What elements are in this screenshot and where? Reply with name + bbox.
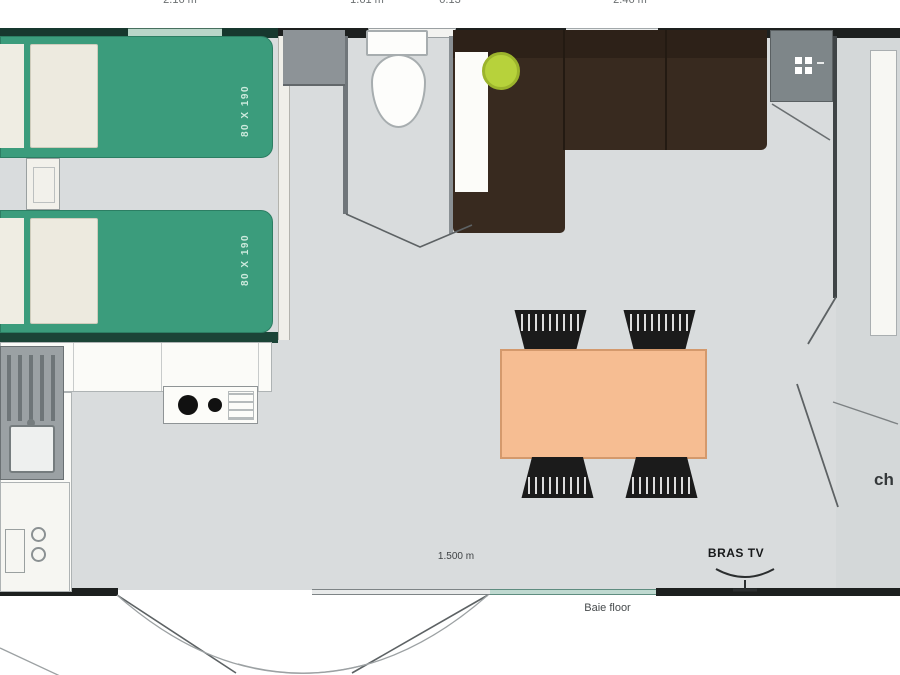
door-swing-arc xyxy=(117,595,368,673)
burner-large-icon xyxy=(178,395,198,415)
burner-small-icon xyxy=(208,398,222,412)
cooktop xyxy=(163,386,258,424)
vent-icon xyxy=(795,57,802,64)
bed-1-pillow xyxy=(30,44,98,148)
toilet-tank xyxy=(366,30,428,56)
sink-drainer xyxy=(7,355,59,421)
sofa-seam xyxy=(665,30,667,150)
bay-door-label: Baie floor xyxy=(550,602,665,614)
wardrobe-unit xyxy=(283,30,345,86)
door-swing-arc xyxy=(238,595,488,673)
patio-door-rail xyxy=(312,589,490,595)
dimension-label: 2.16 m xyxy=(140,0,220,6)
counter-divider xyxy=(161,343,162,391)
closet xyxy=(870,50,897,336)
bay-window-rail xyxy=(490,589,656,595)
sink-unit xyxy=(0,346,64,480)
nightstand-drawer xyxy=(33,167,55,203)
right-room-wall xyxy=(833,36,837,298)
cabinet-drawer xyxy=(5,529,25,573)
floor-plan: 80 X 190 80 X 190 xyxy=(0,0,900,675)
tv-bracket-label: BRAS TV xyxy=(693,546,779,560)
grill-icon xyxy=(228,391,254,420)
chair-slats xyxy=(630,314,690,331)
dining-chair xyxy=(520,457,595,498)
chair-slats xyxy=(632,477,692,494)
sink-bowl xyxy=(9,425,55,473)
sofa-seam xyxy=(563,30,565,150)
right-room-partial-label: ch xyxy=(874,470,894,490)
lower-cabinet xyxy=(0,482,70,592)
hob-ring-icon xyxy=(31,527,46,542)
bed-2-headboard xyxy=(0,218,24,324)
hob-ring-icon xyxy=(31,547,46,562)
entrance-door-leaf xyxy=(352,595,488,673)
bed-2-pillow xyxy=(30,218,98,324)
dining-chair xyxy=(624,457,699,498)
dining-chair xyxy=(513,310,588,351)
dimension-label: 0.13 xyxy=(428,0,472,6)
counter-divider xyxy=(73,343,74,391)
water-heater xyxy=(770,30,833,102)
bed-2-label: 80 X 190 xyxy=(240,211,256,309)
chair-slats xyxy=(521,314,581,331)
dining-table xyxy=(500,349,707,459)
bay-width-label: 1.500 m xyxy=(424,551,488,562)
counter-divider xyxy=(258,343,259,391)
vent-dash-icon xyxy=(817,62,824,64)
dimension-label: 1.61 m xyxy=(332,0,402,6)
bed-1-headboard xyxy=(0,44,24,148)
faucet-icon xyxy=(27,419,35,427)
dining-chair xyxy=(622,310,697,351)
nightstand xyxy=(26,158,60,210)
chair-slats xyxy=(528,477,588,494)
bottom-wall-segment xyxy=(656,588,900,596)
dimension-label: 2.46 m xyxy=(592,0,668,6)
round-cushion xyxy=(482,52,520,90)
terrace-line xyxy=(0,648,60,675)
bed-1-label: 80 X 190 xyxy=(240,62,256,160)
entrance-door-leaf xyxy=(117,595,236,673)
